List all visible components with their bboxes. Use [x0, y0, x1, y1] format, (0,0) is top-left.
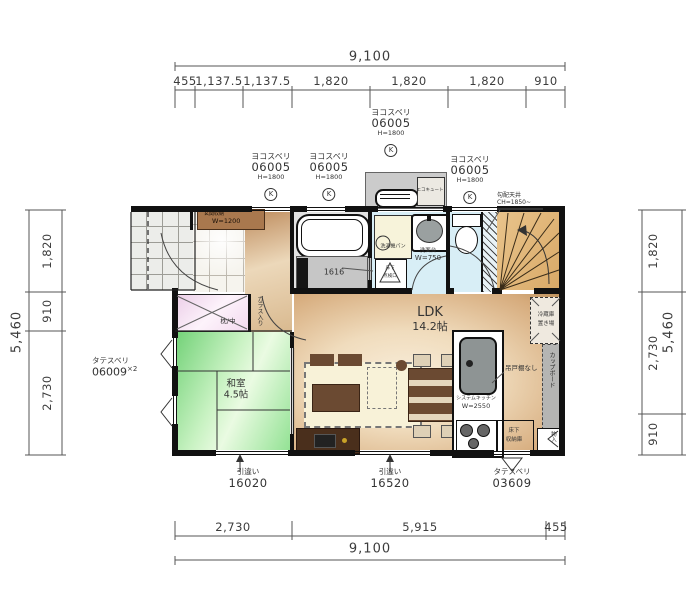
window-height: H=1800 [309, 174, 348, 181]
floor-plan: エコキュート 玄関収納 W=1200 1616 洗濯機パン 洗面台 W=750 … [0, 0, 690, 600]
floor-hatch-line2: 点検口 [383, 273, 397, 279]
washitsu-name: 和室 [224, 379, 249, 390]
dim-top-seg2: 1,137.5 [243, 74, 290, 88]
washer-pan [374, 215, 412, 259]
window-label-bottom-2: 引違い 16520 [370, 468, 409, 490]
toilet-bowl [455, 226, 478, 254]
dim-top-seg1: 1,137.5 [195, 74, 242, 88]
dim-right-overall: 5,460 [662, 311, 677, 353]
window-mark-icon: K [463, 191, 476, 204]
stove-burner [460, 424, 473, 437]
underfloor-line2: 収納庫 [506, 435, 523, 443]
stool [396, 360, 407, 371]
entrance-storage-name: 玄関収納 [204, 210, 224, 217]
stairs-floor [497, 212, 559, 290]
bath-unit-size: 1616 [324, 268, 344, 277]
glass-door-note: ガラス入り [255, 296, 264, 326]
left-casement-marks [161, 340, 172, 426]
vanity-size: W=750 [415, 254, 441, 262]
stove-burner [477, 424, 490, 437]
window-label-1: ヨコスベリ 06005 H=1800 K [251, 152, 290, 201]
dim-bottom-overall: 9,100 [349, 542, 391, 557]
dim-right-seg2: 910 [646, 422, 660, 445]
window-mark-icon: K [384, 144, 397, 157]
hanging-cupboard-note: 吊戸棚なし [505, 362, 538, 372]
entrance-storage-size: W=1200 [212, 217, 240, 225]
window-label-bottom-1: 引違い 16020 [228, 468, 267, 490]
dim-left-seg1: 910 [40, 299, 54, 322]
dining-chair [413, 425, 431, 438]
living-table [312, 384, 360, 412]
dim-left-seg0: 1,820 [40, 233, 54, 268]
window-mark-icon: K [322, 188, 335, 201]
ldk-label: LDK 14.2帖 [412, 306, 448, 334]
dim-bottom-seg0: 2,730 [215, 520, 250, 534]
bath-fixture [297, 258, 308, 288]
window-code: 06009×2 [92, 365, 137, 379]
ceiling-note: 勾配天井 CH=1850~ [497, 192, 531, 206]
tv-board-knob [342, 438, 347, 443]
window-height: H=1800 [450, 177, 489, 184]
dim-bottom-seg2: 455 [544, 520, 567, 534]
window-label-2: ヨコスベリ 06005 H=1800 K [309, 152, 348, 201]
vanity-name: 洗面台 [420, 246, 437, 254]
fridge-line2: 置き場 [538, 319, 555, 327]
window-label-3: ヨコスベリ 06005 H=1800 K [371, 108, 410, 157]
tv-board-handle [314, 434, 336, 448]
window-code: 03609 [492, 477, 531, 490]
heatpump-grill [380, 198, 410, 199]
cupboard-label: カップボード [547, 352, 556, 388]
dim-left-seg2: 2,730 [40, 375, 54, 410]
dining-chair [413, 354, 431, 367]
floor-cushion [338, 354, 362, 366]
ldk-size: 14.2帖 [412, 321, 448, 334]
kitchen-sink [459, 337, 497, 395]
ceiling-note-line1: 勾配天井 [497, 192, 531, 199]
dim-right-seg0: 1,820 [646, 233, 660, 268]
kitchen-name: システムキッチン [456, 395, 496, 402]
ecocute-label: エコキュート [417, 187, 444, 193]
fridge-line1: 冷蔵庫 [538, 310, 555, 318]
oshiire-closet [176, 294, 250, 332]
dim-top-seg5: 1,820 [469, 74, 504, 88]
stove-burner [468, 438, 479, 449]
heatpump-grill [380, 194, 410, 195]
underfloor-line1: 床下 [508, 426, 519, 434]
window-label-bottom-3: タテスベリ 03609 [492, 468, 531, 490]
ldk-name: LDK [412, 306, 448, 321]
bathtub-inner [301, 219, 363, 251]
oshiire-label: 枕/中 [220, 315, 235, 325]
dim-right-seg1: 2,730 [646, 335, 660, 370]
window-label-left: タテスベリ 06009×2 [92, 356, 137, 379]
washitsu-size: 4.5帖 [224, 390, 249, 401]
dim-top-seg0: 455 [173, 74, 196, 88]
window-code: 16020 [228, 477, 267, 490]
washitsu-label: 和室 4.5帖 [224, 379, 249, 402]
floor-cushion [310, 354, 334, 366]
small-closet-label: 物入 [549, 431, 557, 442]
vanity-bowl [416, 219, 443, 243]
dim-top-seg3: 1,820 [313, 74, 348, 88]
window-height: H=1800 [251, 174, 290, 181]
window-height: H=1800 [371, 130, 410, 137]
dim-top-seg6: 910 [534, 74, 557, 88]
dim-left-overall: 5,460 [10, 311, 25, 353]
kitchen-size: W=2550 [462, 402, 490, 410]
dim-bottom-seg1: 5,915 [402, 520, 437, 534]
dim-top-seg4: 1,820 [391, 74, 426, 88]
hall-floor [245, 212, 292, 332]
ceiling-note-line2: CH=1850~ [497, 199, 531, 206]
window-label-4: ヨコスベリ 06005 H=1800 K [450, 155, 489, 204]
floor-hatch-line1: 床下 [386, 265, 395, 271]
window-code: 16520 [370, 477, 409, 490]
kitchen-faucet [466, 360, 473, 367]
vanity-faucet [427, 215, 431, 221]
window-mark-icon: K [264, 188, 277, 201]
washer-pan-label: 洗濯機パン [380, 243, 405, 250]
dim-top-overall: 9,100 [349, 50, 391, 65]
porch-floor [131, 212, 195, 290]
window-type: タテスベリ [92, 356, 137, 365]
rug-section [367, 367, 397, 409]
